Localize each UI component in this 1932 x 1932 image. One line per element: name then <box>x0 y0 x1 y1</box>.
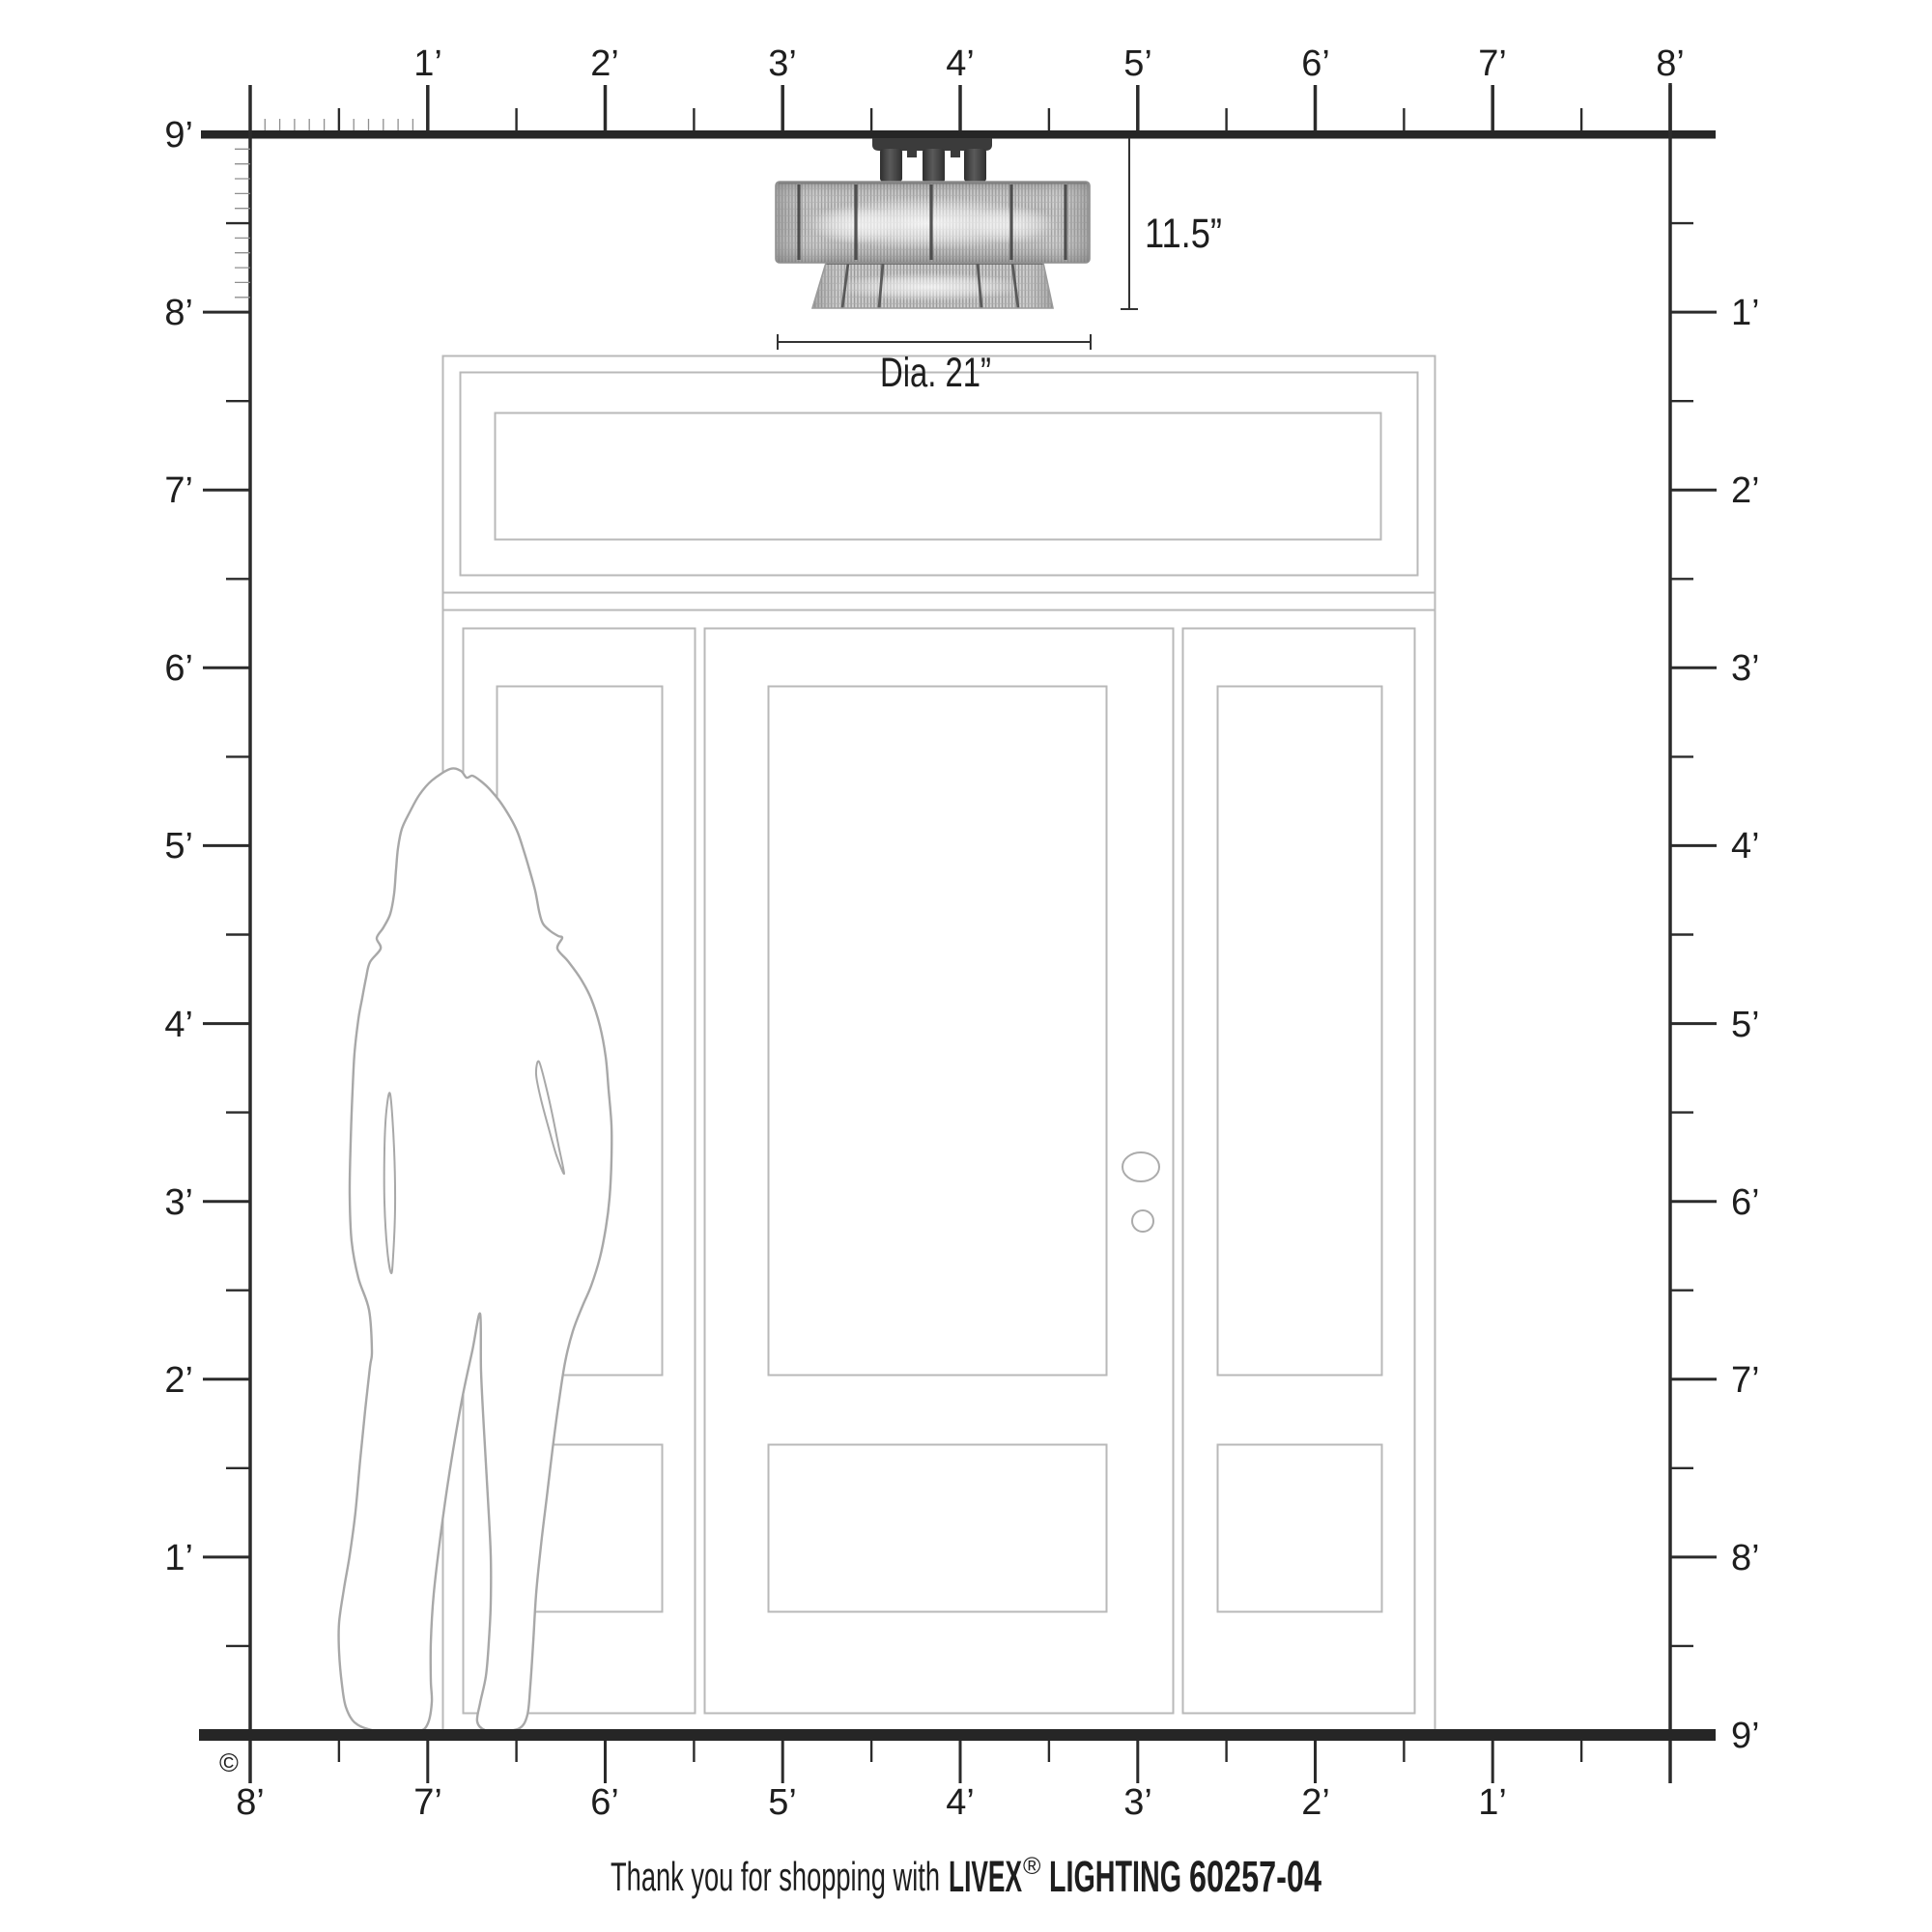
svg-text:1’: 1’ <box>413 43 442 84</box>
svg-text:LIVEX: LIVEX <box>949 1852 1022 1901</box>
svg-text:©: © <box>219 1748 239 1777</box>
svg-text:4’: 4’ <box>946 43 975 84</box>
svg-text:3’: 3’ <box>768 43 797 84</box>
svg-text:LIGHTING: LIGHTING <box>1049 1852 1181 1901</box>
svg-text:6’: 6’ <box>590 1782 619 1823</box>
svg-text:®: ® <box>1023 1853 1041 1880</box>
svg-text:4’: 4’ <box>946 1782 975 1823</box>
svg-text:6’: 6’ <box>1731 1182 1760 1223</box>
svg-text:5’: 5’ <box>1731 1005 1760 1045</box>
svg-text:7’: 7’ <box>1478 43 1507 84</box>
svg-text:5’: 5’ <box>768 1782 797 1823</box>
svg-text:Thank you for shopping with: Thank you for shopping with <box>611 1854 940 1899</box>
svg-text:1’: 1’ <box>1731 293 1760 333</box>
svg-text:4’: 4’ <box>164 1005 193 1045</box>
svg-text:7’: 7’ <box>413 1782 442 1823</box>
svg-text:3’: 3’ <box>164 1182 193 1223</box>
svg-text:8’: 8’ <box>1731 1538 1760 1578</box>
svg-text:2’: 2’ <box>1301 1782 1330 1823</box>
svg-text:2’: 2’ <box>164 1360 193 1401</box>
svg-text:2’: 2’ <box>1731 470 1760 511</box>
svg-text:8’: 8’ <box>236 1782 265 1823</box>
svg-text:1’: 1’ <box>164 1538 193 1578</box>
svg-text:2’: 2’ <box>590 43 619 84</box>
svg-text:4’: 4’ <box>1731 826 1760 867</box>
svg-text:5’: 5’ <box>164 826 193 867</box>
svg-text:3’: 3’ <box>1123 1782 1152 1823</box>
svg-text:60257-04: 60257-04 <box>1189 1852 1321 1901</box>
svg-text:Dia. 21”: Dia. 21” <box>880 350 991 396</box>
svg-text:7’: 7’ <box>164 470 193 511</box>
svg-text:7’: 7’ <box>1731 1360 1760 1401</box>
svg-text:11.5”: 11.5” <box>1145 211 1222 257</box>
svg-text:8’: 8’ <box>1656 43 1685 84</box>
svg-text:6’: 6’ <box>1301 43 1330 84</box>
svg-text:8’: 8’ <box>164 293 193 333</box>
svg-text:5’: 5’ <box>1123 43 1152 84</box>
svg-text:9’: 9’ <box>1731 1716 1760 1756</box>
svg-text:6’: 6’ <box>164 648 193 689</box>
svg-text:1’: 1’ <box>1478 1782 1507 1823</box>
svg-text:9’: 9’ <box>164 115 193 156</box>
svg-text:3’: 3’ <box>1731 648 1760 689</box>
